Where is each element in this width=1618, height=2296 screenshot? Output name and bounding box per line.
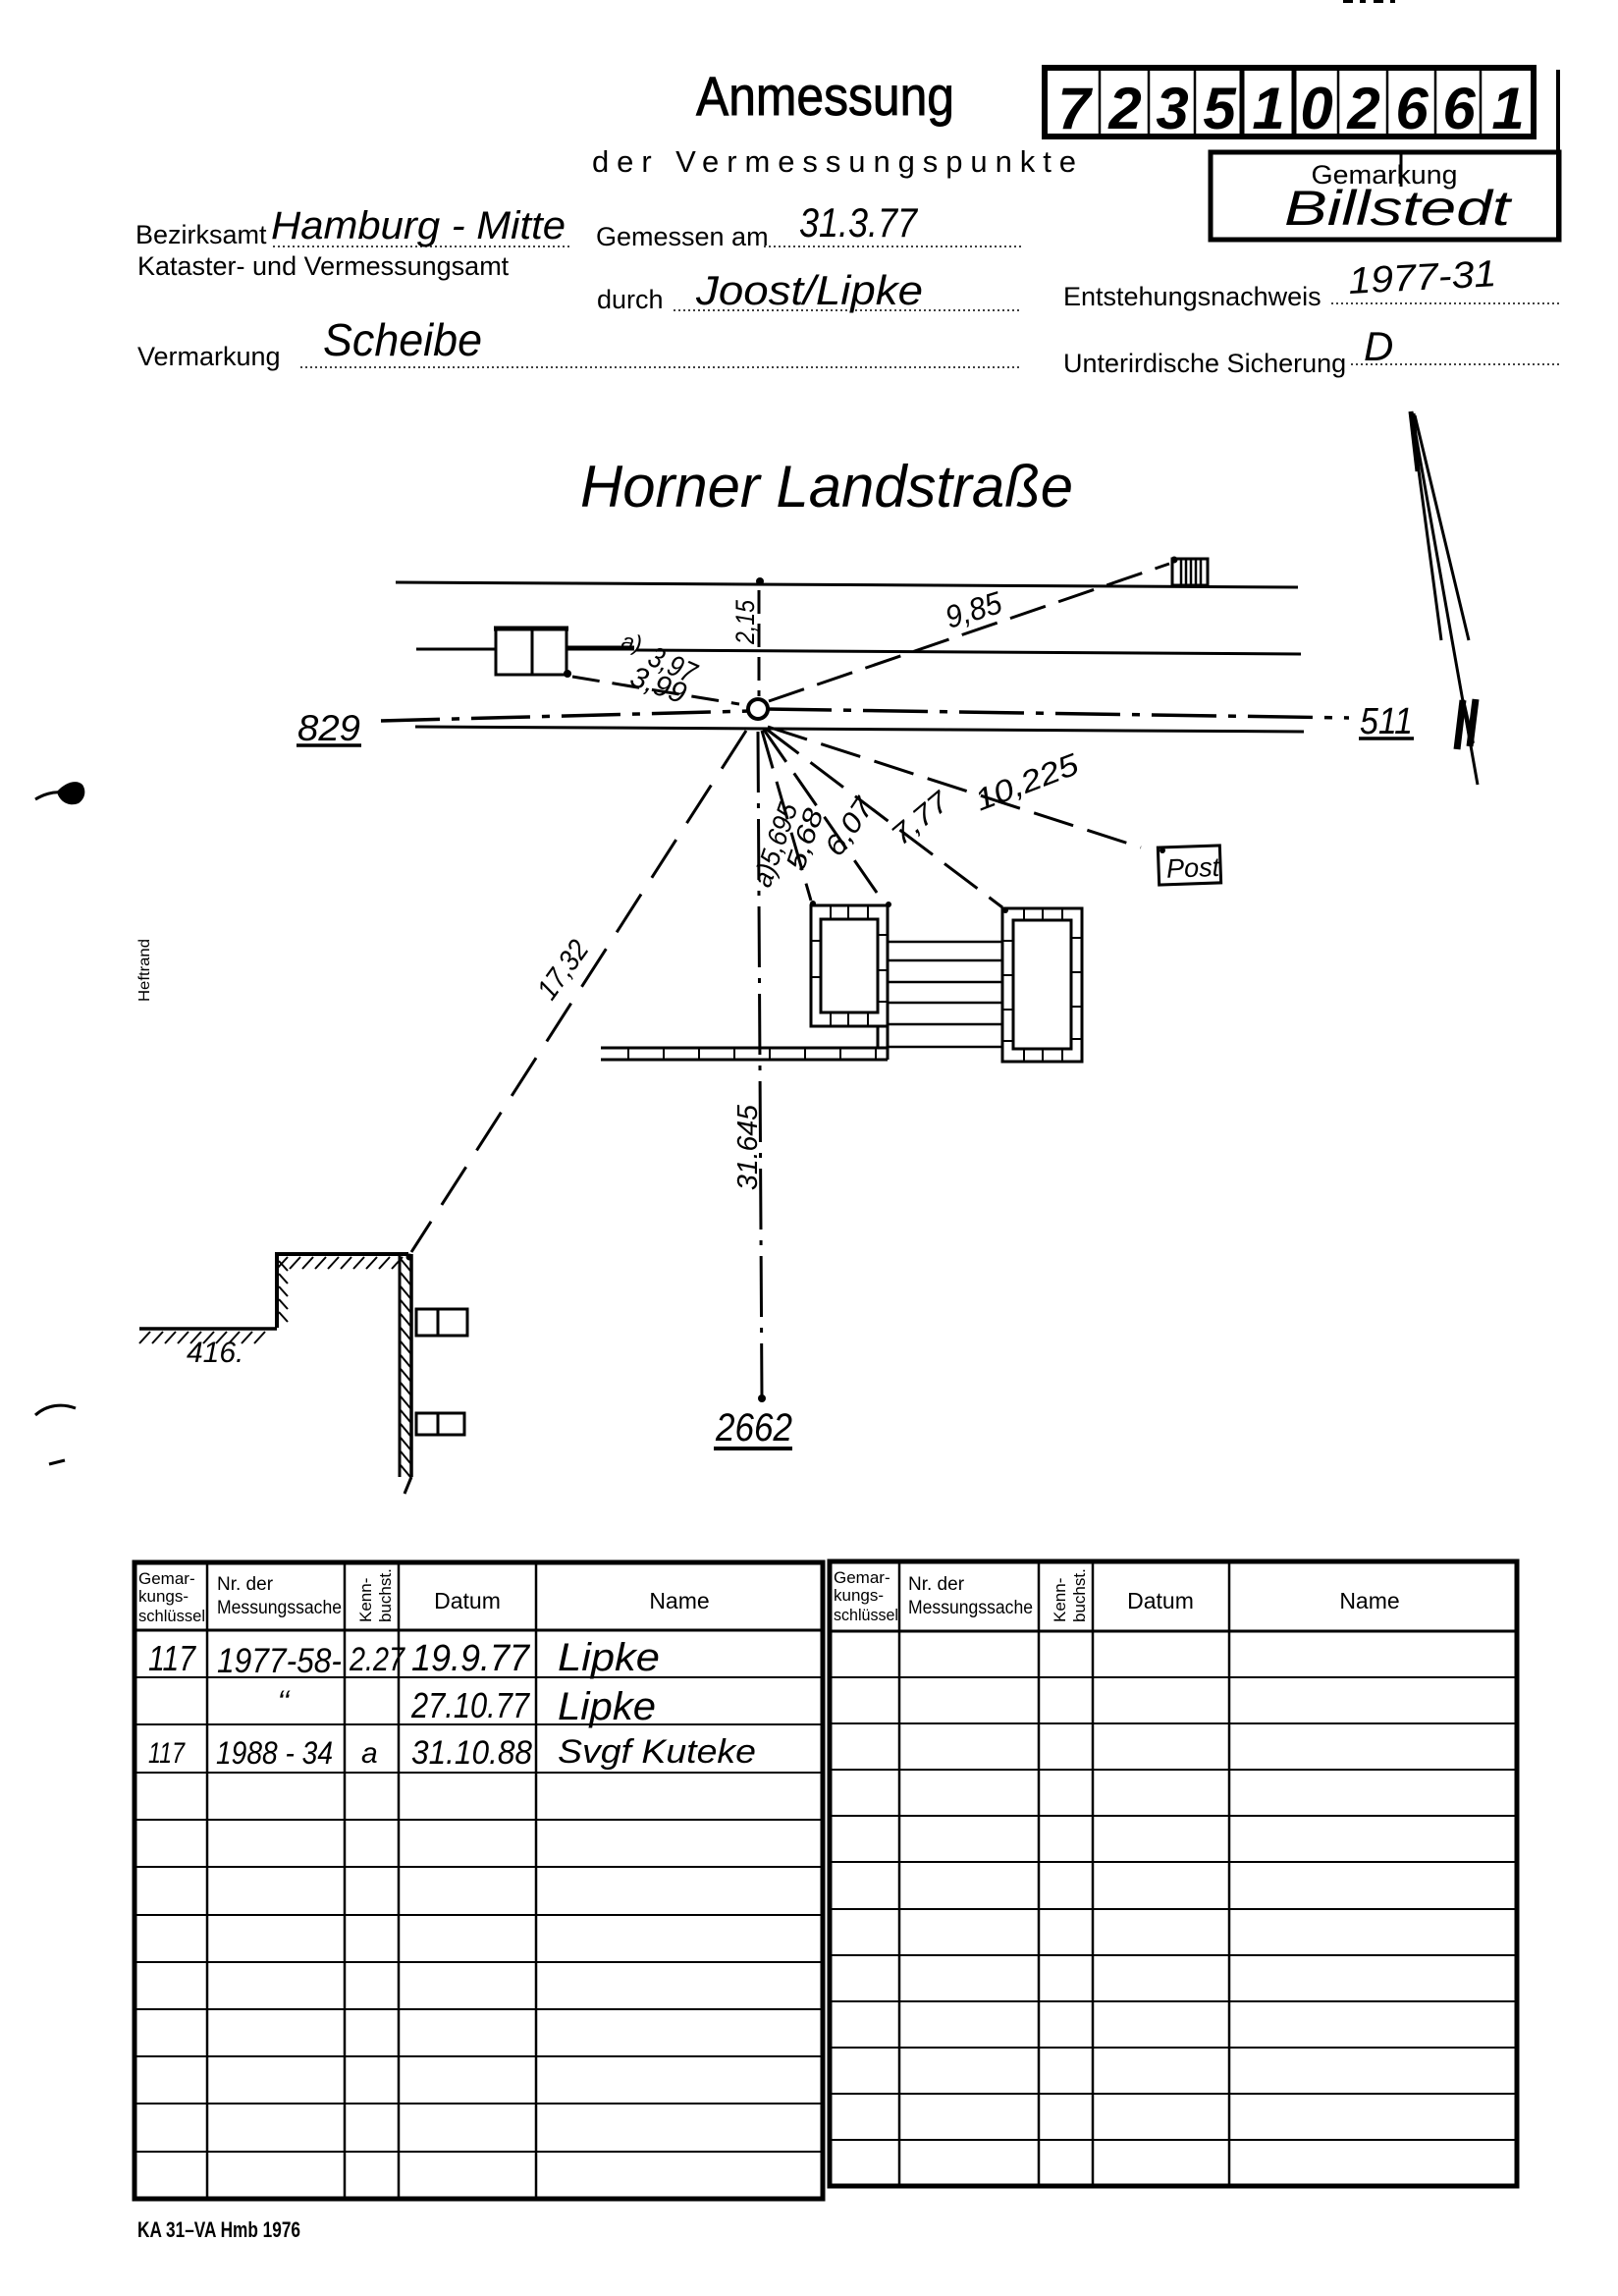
svg-text:Kenn-: Kenn- xyxy=(356,1578,375,1622)
svg-text:416.: 416. xyxy=(187,1337,243,1369)
svg-text:Svgf Kuteke: Svgf Kuteke xyxy=(558,1733,756,1771)
svg-text:kungs-: kungs- xyxy=(834,1586,884,1605)
svg-text:1: 1 xyxy=(1252,76,1284,141)
svg-text:0: 0 xyxy=(1300,76,1332,141)
svg-text:Name: Name xyxy=(1339,1588,1399,1613)
svg-text:Vermarkung: Vermarkung xyxy=(137,342,281,371)
svg-text:27.10.77: 27.10.77 xyxy=(410,1685,531,1725)
svg-text:Messungssache: Messungssache xyxy=(217,1598,342,1618)
svg-text:1977-58-: 1977-58- xyxy=(217,1642,342,1680)
svg-text:Lipke: Lipke xyxy=(558,1685,656,1728)
svg-text:Anmessung: Anmessung xyxy=(696,65,954,127)
svg-text:buchst.: buchst. xyxy=(1070,1568,1089,1622)
svg-text:Heftrand: Heftrand xyxy=(136,939,153,1002)
svg-text:D: D xyxy=(1364,323,1393,369)
svg-text:Scheibe: Scheibe xyxy=(323,314,482,365)
svg-text:Datum: Datum xyxy=(1127,1588,1194,1613)
svg-text:Hamburg - Mitte: Hamburg - Mitte xyxy=(271,204,566,247)
svg-text:2: 2 xyxy=(1346,76,1379,141)
svg-text:Entstehungsnachweis: Entstehungsnachweis xyxy=(1063,282,1321,311)
svg-text:31.10.88: 31.10.88 xyxy=(411,1734,532,1772)
svg-text:511: 511 xyxy=(1360,701,1413,742)
svg-text:31.645: 31.645 xyxy=(732,1104,764,1190)
svg-text:31.3.77: 31.3.77 xyxy=(799,199,918,246)
svg-text:2662: 2662 xyxy=(715,1406,792,1449)
svg-text:6: 6 xyxy=(1395,76,1429,141)
svg-text:117: 117 xyxy=(148,1638,197,1678)
svg-text:Kenn-: Kenn- xyxy=(1051,1578,1069,1622)
svg-text:829: 829 xyxy=(297,708,360,748)
svg-text:Datum: Datum xyxy=(434,1588,501,1613)
svg-text:2.27: 2.27 xyxy=(349,1641,405,1678)
svg-text:schlüssel: schlüssel xyxy=(834,1606,898,1624)
svg-text:kungs-: kungs- xyxy=(138,1587,189,1606)
svg-text:KA 31–VA Hmb 1976: KA 31–VA Hmb 1976 xyxy=(137,2217,300,2242)
svg-text:5: 5 xyxy=(1203,76,1237,141)
svg-text:Gemar-: Gemar- xyxy=(138,1569,195,1588)
svg-text:1988 - 34: 1988 - 34 xyxy=(216,1735,333,1771)
svg-text:‘‘: ‘‘ xyxy=(277,1684,291,1720)
svg-text:Kataster- und Vermessungsamt: Kataster- und Vermessungsamt xyxy=(137,251,510,281)
svg-text:7: 7 xyxy=(1057,76,1093,141)
svg-text:1: 1 xyxy=(1491,76,1524,141)
svg-text:Nr. der: Nr. der xyxy=(217,1574,274,1595)
svg-text:6: 6 xyxy=(1442,76,1476,141)
svg-text:Joost/Lipke: Joost/Lipke xyxy=(695,267,923,313)
svg-text:der Vermessungspunkte: der Vermessungspunkte xyxy=(592,144,1076,179)
svg-text:1977-31: 1977-31 xyxy=(1347,253,1497,302)
svg-text:Messungssache: Messungssache xyxy=(908,1598,1033,1618)
svg-text:2,15: 2,15 xyxy=(730,599,760,645)
svg-text:a: a xyxy=(361,1737,378,1770)
svg-text:Lipke: Lipke xyxy=(558,1636,660,1679)
svg-text:Bezirksamt: Bezirksamt xyxy=(135,220,267,249)
svg-text:Name: Name xyxy=(649,1588,709,1613)
svg-text:117: 117 xyxy=(148,1737,186,1770)
svg-text:buchst.: buchst. xyxy=(376,1568,395,1622)
svg-text:Unterirdische Sicherung: Unterirdische Sicherung xyxy=(1063,349,1346,378)
svg-text:Billstedt: Billstedt xyxy=(1284,181,1513,236)
svg-text:durch: durch xyxy=(597,285,664,314)
svg-text:Horner Landstraße: Horner Landstraße xyxy=(580,454,1073,519)
svg-text:Gemessen am: Gemessen am xyxy=(596,222,769,251)
svg-text:Nr. der: Nr. der xyxy=(908,1574,965,1595)
svg-text:19.9.77: 19.9.77 xyxy=(411,1638,531,1679)
svg-text:2: 2 xyxy=(1107,76,1141,141)
svg-text:schlüssel: schlüssel xyxy=(138,1607,205,1625)
svg-text:Gemar-: Gemar- xyxy=(834,1568,890,1587)
svg-text:Post: Post xyxy=(1166,852,1222,884)
svg-text:3: 3 xyxy=(1156,76,1188,141)
